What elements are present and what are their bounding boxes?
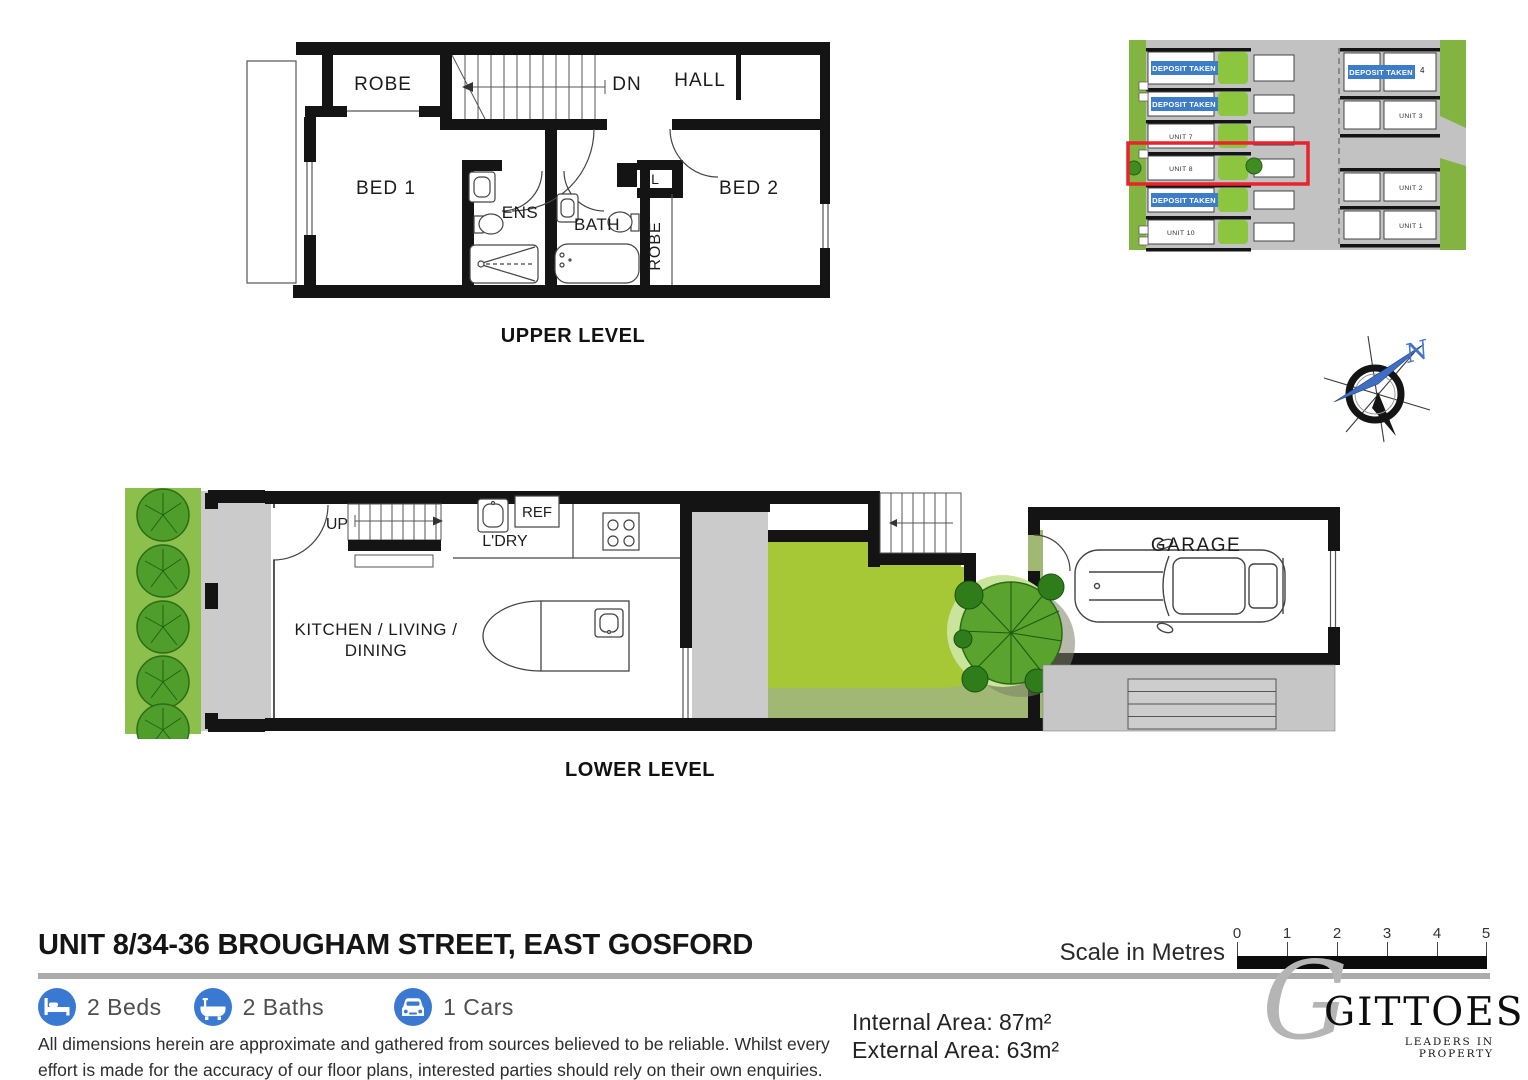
area-internal: Internal Area:87m² xyxy=(852,1008,1059,1036)
kitchen-living-label: KITCHEN / LIVING / xyxy=(295,620,458,639)
north-label: N xyxy=(1401,335,1433,370)
beds-count: 2 Beds xyxy=(87,994,162,1021)
disclaimer-line2: effort is made for the accuracy of our f… xyxy=(38,1057,830,1080)
feature-cars: 1 Cars xyxy=(394,988,514,1026)
garage-label: GARAGE xyxy=(1151,535,1241,556)
bed1-label: BED 1 xyxy=(356,178,416,199)
internal-area-label: Internal Area: xyxy=(852,1009,993,1035)
entry-stairs xyxy=(880,493,961,553)
deposit-badge: DEPOSIT TAKEN xyxy=(1152,196,1216,205)
scale-label: Scale in Metres xyxy=(1020,939,1225,967)
feature-beds: 2 Beds xyxy=(38,988,162,1026)
ens-fixtures xyxy=(469,172,538,283)
internal-area-value: 87m² xyxy=(999,1009,1051,1035)
up-label: UP xyxy=(326,516,348,533)
area-summary: Internal Area:87m² External Area:63m² xyxy=(852,1008,1059,1064)
robe2-label: ROBE xyxy=(647,221,664,270)
lower-floorplan: UP REF L'DRY KITCHEN / LIVING / DINING G… xyxy=(123,483,1343,739)
patio xyxy=(201,491,271,731)
site-tree-icon xyxy=(1246,158,1262,174)
upper-floorplan: ROBE DN HALL BED 1 ENS BATH L ROBE BED 2 xyxy=(243,36,835,304)
bath-icon xyxy=(194,988,232,1026)
driveway xyxy=(1043,665,1335,731)
ref-label: REF xyxy=(522,504,552,521)
linen-label: L xyxy=(651,171,659,187)
scale-tick-3: 3 xyxy=(1377,925,1397,942)
ens-label: ENS xyxy=(502,203,538,222)
disclaimer-line1: All dimensions herein are approximate an… xyxy=(38,1031,830,1057)
upper-door-arcs xyxy=(502,129,718,211)
baths-count: 2 Baths xyxy=(243,994,325,1021)
stairs-down xyxy=(452,55,605,119)
car-icon xyxy=(394,988,432,1026)
external-area-value: 63m² xyxy=(1007,1037,1059,1063)
ldry-label: L'DRY xyxy=(482,533,528,550)
page-title: UNIT 8/34-36 BROUGHAM STREET, EAST GOSFO… xyxy=(38,929,753,962)
lower-level-caption: LOWER LEVEL xyxy=(530,759,750,782)
site-plan: DEPOSIT TAKEN DEPOSIT TAKEN UNIT 7 UNIT … xyxy=(1126,36,1478,264)
external-area-label: External Area: xyxy=(852,1037,1001,1063)
island-bench xyxy=(483,601,629,671)
scale-tick-0: 0 xyxy=(1227,925,1247,942)
deposit-badge: DEPOSIT TAKEN xyxy=(1152,100,1216,109)
unit1-label: UNIT 1 xyxy=(1399,223,1423,230)
unit4-number: 4 xyxy=(1420,66,1425,75)
hall-label: HALL xyxy=(674,70,726,91)
bath-label: BATH xyxy=(574,215,620,234)
unit3-label: UNIT 3 xyxy=(1399,113,1423,120)
bed-icon xyxy=(38,988,76,1026)
area-external: External Area:63m² xyxy=(852,1036,1059,1064)
feature-baths: 2 Baths xyxy=(194,988,325,1026)
agency-logo: G GITTOES LEADERS IN PROPERTY xyxy=(1262,966,1497,1076)
unit10-label: UNIT 10 xyxy=(1167,230,1195,237)
unit8-label: UNIT 8 xyxy=(1169,166,1193,173)
stair-arrow xyxy=(462,82,473,92)
logo-name: GITTOES xyxy=(1324,990,1524,1035)
bed2-label: BED 2 xyxy=(719,178,779,199)
site-left-verge xyxy=(1129,40,1146,250)
street-trees xyxy=(137,489,189,739)
dn-label: DN xyxy=(612,74,641,95)
bath-fixtures xyxy=(555,194,639,283)
unit7-label: UNIT 7 xyxy=(1169,134,1193,141)
deposit-badge: DEPOSIT TAKEN xyxy=(1152,64,1216,73)
disclaimer: All dimensions herein are approximate an… xyxy=(38,1031,830,1080)
stairs-up xyxy=(348,504,443,567)
dining-label: DINING xyxy=(345,641,408,660)
upper-level-caption: UPPER LEVEL xyxy=(463,325,683,348)
floorplan-sheet: ROBE DN HALL BED 1 ENS BATH L ROBE BED 2… xyxy=(0,0,1528,1080)
scale-tick-4: 4 xyxy=(1427,925,1447,942)
scale-tick-5: 5 xyxy=(1476,925,1496,942)
robe-label: ROBE xyxy=(354,74,412,95)
compass: N xyxy=(1322,332,1437,444)
cars-count: 1 Cars xyxy=(443,994,514,1021)
deposit-badge: DEPOSIT TAKEN xyxy=(1349,68,1413,77)
logo-tagline: LEADERS IN PROPERTY xyxy=(1328,1036,1494,1060)
side-path xyxy=(692,504,768,718)
feature-summary: 2 Beds 2 Baths xyxy=(38,988,514,1026)
roof-below-outline xyxy=(247,61,296,283)
unit2-label: UNIT 2 xyxy=(1399,185,1423,192)
